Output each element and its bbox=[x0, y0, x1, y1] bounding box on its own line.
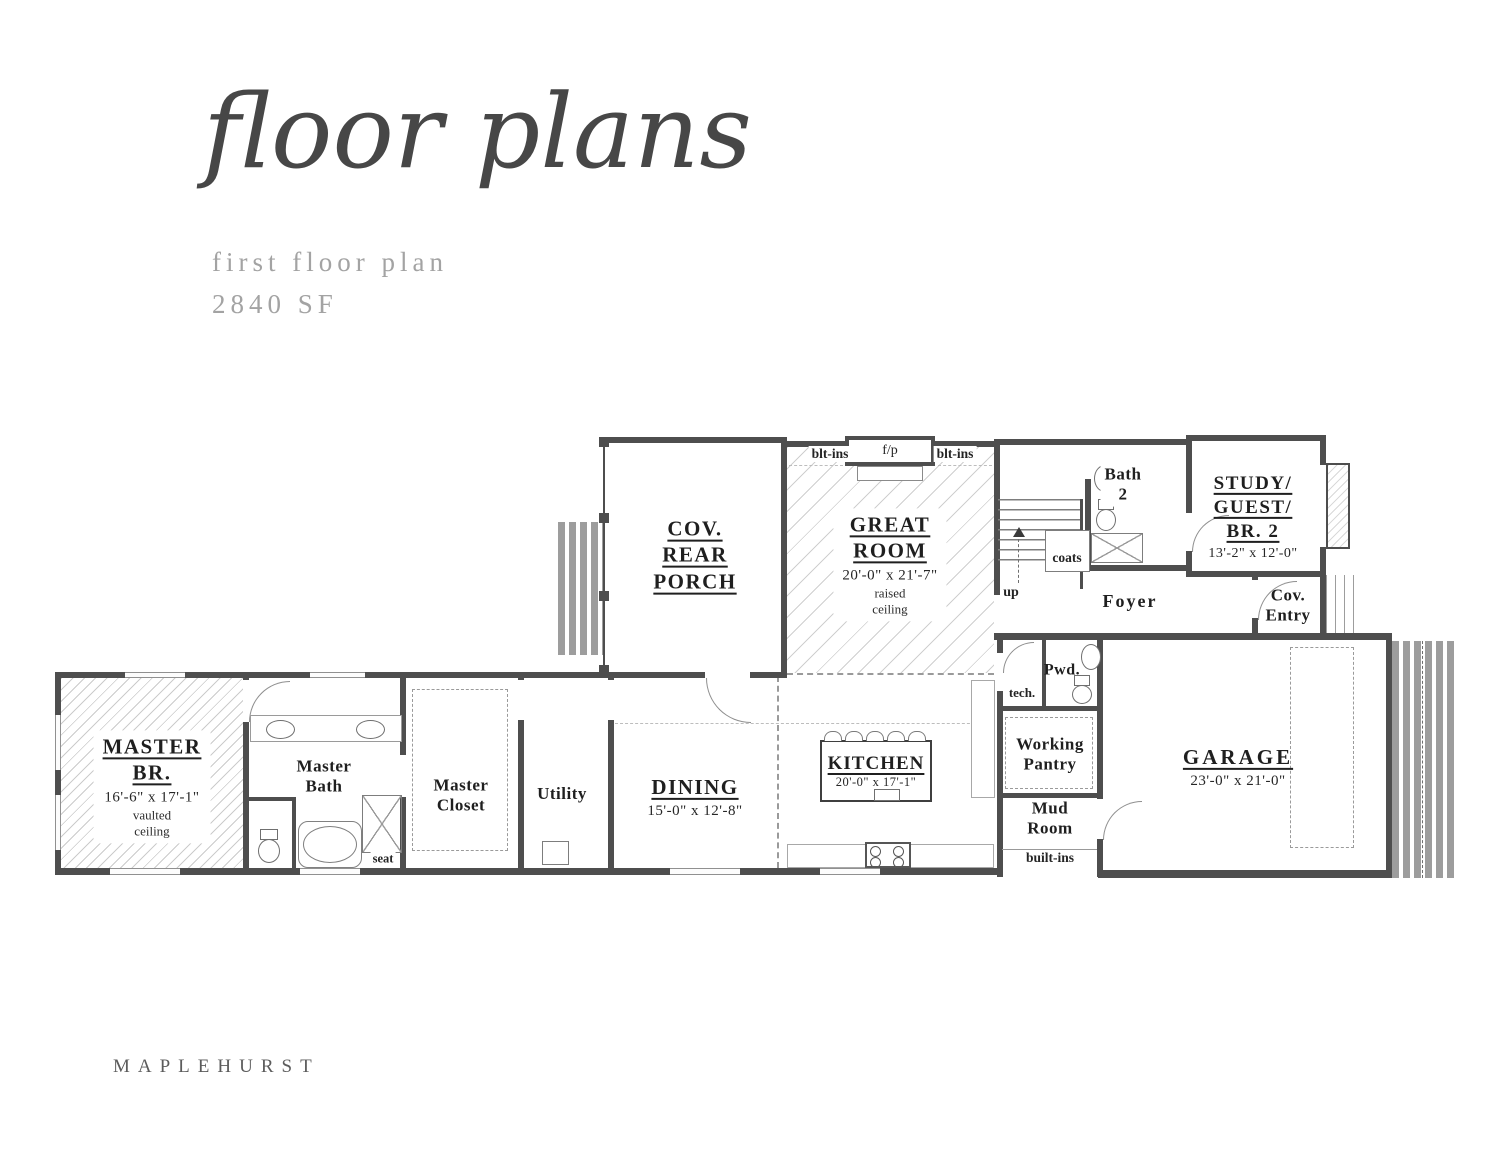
wall bbox=[997, 793, 1103, 798]
porch-label: COV. REAR PORCH bbox=[653, 516, 736, 595]
pwd-label: Pwd. bbox=[1044, 660, 1080, 679]
room-master-br: MASTER BR. 16'-6" x 17'-1" vaulted ceili… bbox=[94, 730, 211, 843]
great-kitchen-boundary bbox=[787, 673, 994, 675]
room-working-pantry: Working Pantry bbox=[1013, 734, 1087, 777]
burner-icon bbox=[870, 857, 881, 868]
porch-edge bbox=[603, 437, 605, 678]
garage-door-outline bbox=[1290, 647, 1354, 848]
door-opening bbox=[994, 595, 1000, 633]
door-opening bbox=[1252, 580, 1258, 618]
sink-icon bbox=[266, 720, 295, 739]
utility-label: Utility bbox=[537, 784, 587, 804]
porch-post bbox=[599, 513, 609, 523]
toilet-icon bbox=[258, 829, 280, 863]
builtins-counter bbox=[938, 465, 992, 466]
brand-name: MAPLEHURST bbox=[113, 1056, 320, 1078]
burner-icon bbox=[893, 846, 904, 857]
door-opening bbox=[1097, 799, 1103, 839]
master-br-dims: 16'-6" x 17'-1" bbox=[104, 789, 199, 806]
window bbox=[310, 672, 365, 678]
working-pantry-label: Working Pantry bbox=[1016, 735, 1084, 776]
window bbox=[125, 672, 185, 678]
great-room-label: GREAT ROOM bbox=[850, 511, 931, 564]
porch-post bbox=[599, 665, 609, 675]
burner-icon bbox=[870, 846, 881, 857]
wall bbox=[1320, 571, 1326, 640]
wall bbox=[1098, 870, 1392, 878]
driveway bbox=[1392, 641, 1458, 878]
door-opening bbox=[1186, 513, 1192, 551]
blt-ins-right-label: blt-ins bbox=[934, 446, 977, 462]
mud-room-label: Mud Room bbox=[1027, 799, 1072, 840]
page-title: floor plans bbox=[203, 72, 752, 194]
wall bbox=[781, 437, 787, 678]
porch-post bbox=[599, 591, 609, 601]
bar-stool-icon bbox=[866, 731, 884, 741]
wall bbox=[292, 797, 296, 868]
wall bbox=[248, 797, 296, 801]
master-bath-label: Master Bath bbox=[297, 757, 352, 798]
room-cov-entry: Cov. Entry bbox=[1266, 586, 1311, 627]
kitchen-cabinets bbox=[971, 680, 995, 798]
dining-kitchen-boundary bbox=[777, 676, 779, 868]
door-opening bbox=[518, 680, 524, 720]
window bbox=[110, 868, 180, 875]
first-floor-plan-drawing: KITCHEN 20'-0" x 17'-1" MASTER BR. 16'-6… bbox=[50, 425, 1462, 890]
bath2-label: Bath 2 bbox=[1105, 465, 1142, 506]
room-master-bath: Master Bath bbox=[297, 757, 352, 798]
room-study-guest-br2: STUDY/ GUEST/ BR. 2 13'-2" x 12'-0" bbox=[1208, 472, 1297, 562]
door-opening bbox=[608, 680, 614, 720]
door-arc bbox=[706, 678, 751, 723]
foyer-label: Foyer bbox=[1103, 591, 1158, 613]
master-br-note: vaulted ceiling bbox=[133, 807, 171, 841]
island-sink bbox=[874, 789, 900, 801]
dining-label: DINING bbox=[651, 774, 738, 800]
cov-entry-label: Cov. Entry bbox=[1266, 586, 1311, 627]
window bbox=[55, 715, 61, 770]
wall bbox=[1186, 435, 1192, 577]
room-pwd: Pwd. bbox=[1044, 660, 1080, 679]
coats-label: coats bbox=[1050, 550, 1083, 566]
bar-stool-icon bbox=[845, 731, 863, 741]
room-bath2: Bath 2 bbox=[1101, 464, 1146, 507]
door-arc bbox=[1003, 642, 1034, 673]
bar-stool-icon bbox=[824, 731, 842, 741]
room-garage: GARAGE 23'-0" x 21'-0" bbox=[1183, 744, 1293, 790]
room-great-room: GREAT ROOM 20'-0" x 21'-7" raised ceilin… bbox=[833, 508, 946, 621]
window bbox=[820, 868, 880, 875]
up-arrow-shaft bbox=[1018, 539, 1019, 583]
floor-plan-sheet: { "header": { "title": "floor plans", "s… bbox=[0, 0, 1500, 1159]
wall bbox=[994, 439, 1192, 445]
shower-icon bbox=[1091, 533, 1143, 563]
area-label: 2840 SF bbox=[212, 283, 448, 325]
shower-icon bbox=[362, 795, 402, 853]
bar-stool-icon bbox=[908, 731, 926, 741]
tech-label: tech. bbox=[1009, 685, 1035, 701]
study-dims: 13'-2" x 12'-0" bbox=[1208, 546, 1297, 562]
up-arrow-icon bbox=[1013, 527, 1025, 537]
porch-post bbox=[599, 437, 609, 447]
wall bbox=[997, 706, 1103, 711]
up-label: up bbox=[1003, 585, 1019, 601]
seat-label: seat bbox=[371, 852, 396, 867]
window bbox=[300, 868, 360, 875]
room-cov-rear-porch: COV. REAR PORCH bbox=[653, 516, 736, 595]
blt-ins-left-label: blt-ins bbox=[809, 446, 852, 462]
kitchen-label: KITCHEN bbox=[828, 752, 925, 776]
builtins-counter bbox=[789, 465, 843, 466]
closet-wardrobes bbox=[412, 689, 508, 851]
great-room-dims: 20'-0" x 21'-7" bbox=[842, 567, 937, 584]
wall bbox=[603, 437, 787, 443]
window bbox=[670, 868, 740, 875]
built-ins-label: built-ins bbox=[1026, 850, 1074, 866]
door-opening bbox=[1085, 445, 1091, 479]
subtitle-line: first floor plan bbox=[212, 241, 448, 283]
door-opening bbox=[243, 680, 249, 722]
driveway-line bbox=[1422, 641, 1423, 878]
room-utility: Utility bbox=[537, 784, 587, 804]
dining-dims: 15'-0" x 12'-8" bbox=[647, 803, 742, 820]
door-arc bbox=[1103, 801, 1142, 840]
wall bbox=[1097, 633, 1103, 877]
entry-steps bbox=[1326, 575, 1362, 639]
wall bbox=[1386, 638, 1392, 878]
garage-dims: 23'-0" x 21'-0" bbox=[1190, 773, 1285, 790]
fireplace-label: f/p bbox=[882, 443, 898, 459]
room-master-closet: Master Closet bbox=[428, 774, 495, 819]
ceiling-break-line bbox=[615, 723, 990, 724]
porch-steps bbox=[558, 522, 604, 655]
room-dining: DINING 15'-0" x 12'-8" bbox=[647, 774, 742, 820]
room-mud-room: Mud Room bbox=[1027, 799, 1072, 840]
great-room-note: raised ceiling bbox=[872, 585, 907, 619]
bay-window bbox=[1326, 463, 1350, 549]
sink-icon bbox=[1081, 644, 1101, 670]
sink-icon bbox=[356, 720, 385, 739]
study-label: STUDY/ GUEST/ BR. 2 bbox=[1214, 472, 1293, 543]
plan-subtitle: first floor plan 2840 SF bbox=[212, 241, 448, 325]
hearth bbox=[857, 466, 923, 481]
wall bbox=[1186, 435, 1326, 441]
door-opening bbox=[400, 755, 406, 797]
washer-icon bbox=[542, 841, 569, 865]
room-foyer: Foyer bbox=[1103, 591, 1158, 613]
bathtub-icon bbox=[298, 821, 362, 868]
window bbox=[55, 795, 61, 850]
burner-icon bbox=[893, 857, 904, 868]
bar-stool-icon bbox=[887, 731, 905, 741]
garage-label: GARAGE bbox=[1183, 744, 1293, 770]
wall bbox=[997, 633, 1392, 640]
master-closet-label: Master Closet bbox=[434, 776, 489, 817]
master-br-label: MASTER BR. bbox=[103, 733, 202, 786]
